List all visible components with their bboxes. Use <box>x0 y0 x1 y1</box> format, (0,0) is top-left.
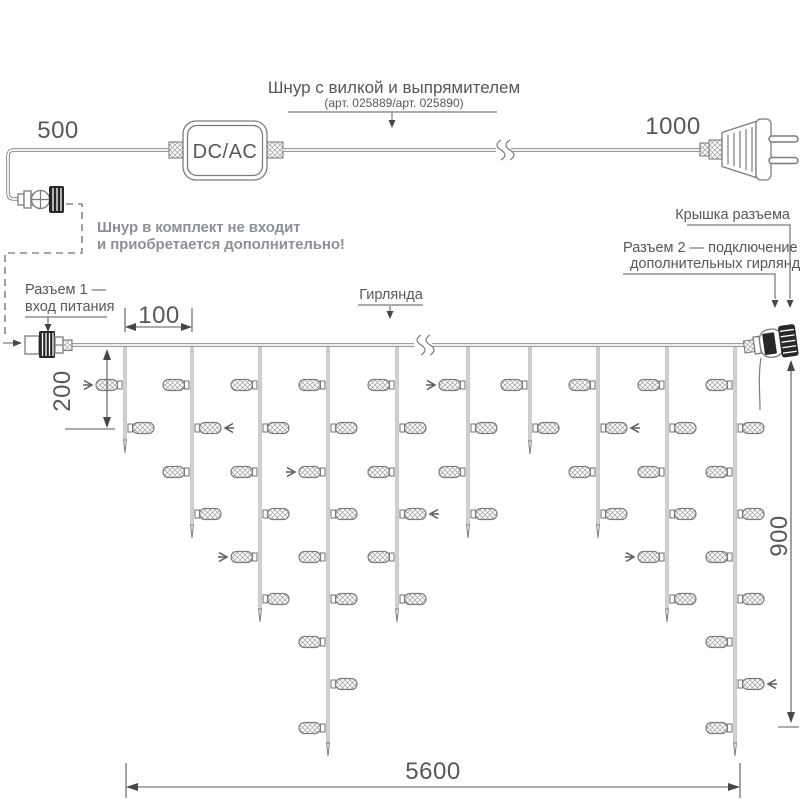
lamp-icon <box>368 467 390 478</box>
lamp-socket <box>321 638 326 646</box>
lamp-icon <box>706 380 728 391</box>
cap-tether <box>759 358 761 410</box>
lamp-icon <box>606 423 628 434</box>
garland-callout: Гирлянда <box>358 287 424 319</box>
lamp-socket <box>321 381 326 389</box>
lamp-icon <box>231 380 253 391</box>
drop-tip <box>666 609 669 622</box>
lamp-icon <box>200 509 222 520</box>
lamp-icon <box>675 423 697 434</box>
lamp-socket <box>253 553 258 561</box>
lamp-socket <box>390 553 395 561</box>
lamp-icon <box>743 679 765 690</box>
lamp-socket <box>728 468 733 476</box>
dim-500: 500 <box>37 117 79 144</box>
direction-arrow-icon <box>426 381 435 390</box>
lamp-socket <box>400 424 405 432</box>
lamp-socket <box>390 468 395 476</box>
garland-drops <box>83 347 777 756</box>
dashed-arrow-head <box>13 340 22 347</box>
plug-prongs <box>772 139 795 161</box>
lamp-socket <box>471 510 476 518</box>
lamp-icon <box>163 380 185 391</box>
lamp-socket <box>660 381 665 389</box>
connector1-label-line1: Разъем 1 — <box>25 282 107 298</box>
dim-200: 200 <box>49 370 76 412</box>
lamp-socket <box>321 553 326 561</box>
lamp-icon <box>638 552 660 563</box>
drop-tip <box>259 609 262 622</box>
lamp-socket <box>728 553 733 561</box>
lamp-icon <box>268 423 290 434</box>
lamp-icon <box>501 380 523 391</box>
lamp-icon <box>268 594 290 605</box>
lamp-socket <box>195 424 200 432</box>
drop-tip <box>529 441 532 454</box>
direction-arrow-icon <box>218 553 227 562</box>
lamp-icon <box>743 423 765 434</box>
drop-tip <box>327 743 330 756</box>
lamp-icon <box>299 723 321 734</box>
lamp-socket <box>185 381 190 389</box>
lamp-icon <box>569 380 591 391</box>
lamp-socket <box>670 510 675 518</box>
lamp-icon <box>675 594 697 605</box>
garland-diagram: 500 DC/AC 1000 Шнур с вилкой и выпрямите… <box>0 0 800 800</box>
connector1-callout: Разъем 1 — вход питания <box>25 282 114 332</box>
dcac-converter-box: DC/AC <box>169 121 283 180</box>
lamp-icon <box>439 467 461 478</box>
lamp-socket <box>738 510 743 518</box>
dim-100-group: 100 <box>125 302 192 332</box>
connector2-callout: Разъем 2 — подключение дополнительных ги… <box>623 240 800 308</box>
drop-tip <box>396 609 399 622</box>
direction-arrow-icon <box>286 468 295 477</box>
lamp-socket <box>195 510 200 518</box>
lamp-icon <box>231 467 253 478</box>
lamp-socket <box>331 595 336 603</box>
lamp-icon <box>231 552 253 563</box>
lamp-socket <box>591 381 596 389</box>
lamp-socket <box>738 424 743 432</box>
lamp-socket <box>461 468 466 476</box>
connector2-label-line2: дополнительных гирлянд <box>630 256 800 272</box>
lamp-icon <box>200 423 222 434</box>
drop-tip <box>734 743 737 756</box>
drop-tip <box>597 525 600 538</box>
dim-1000: 1000 <box>645 113 700 140</box>
lamp-icon <box>336 679 358 690</box>
lamp-icon <box>299 467 321 478</box>
lamp-icon <box>336 594 358 605</box>
lamp-socket <box>728 381 733 389</box>
lamp-socket <box>660 553 665 561</box>
lamp-icon <box>268 509 290 520</box>
lamp-socket <box>728 638 733 646</box>
cap-label: Крышка разъема <box>675 207 791 223</box>
drop-tip <box>467 525 470 538</box>
lamp-icon <box>706 552 728 563</box>
note-line1: Шнур в комплект не входит <box>97 219 300 236</box>
dim-900-group: 900 <box>766 360 799 727</box>
dim-900: 900 <box>766 515 793 557</box>
break-symbols <box>417 140 514 355</box>
lamp-socket <box>118 381 123 389</box>
lamp-icon <box>439 380 461 391</box>
lamp-socket <box>670 595 675 603</box>
lamp-icon <box>476 423 498 434</box>
lamp-icon <box>299 637 321 648</box>
direction-arrow-icon <box>631 424 640 433</box>
lamp-socket <box>601 510 606 518</box>
power-plug-icon <box>700 119 795 180</box>
lamp-socket <box>185 468 190 476</box>
cord-callout: Шнур с вилкой и выпрямителем (арт. 02588… <box>268 78 520 128</box>
connector-2 <box>742 324 799 363</box>
lamp-socket <box>400 595 405 603</box>
power-cord-connector <box>18 186 64 213</box>
lamp-icon <box>299 380 321 391</box>
lamp-socket <box>728 724 733 732</box>
lamp-icon <box>405 509 427 520</box>
cord-subtitle: (арт. 025889/арт. 025890) <box>324 96 463 110</box>
drop-tip <box>124 440 127 453</box>
lamp-icon <box>476 509 498 520</box>
power-cord-left-segment <box>8 150 170 199</box>
lamp-icon <box>743 509 765 520</box>
lamp-socket <box>128 424 133 432</box>
lamp-icon <box>606 509 628 520</box>
lamp-icon <box>638 380 660 391</box>
lamp-socket <box>331 680 336 688</box>
lamp-icon <box>163 467 185 478</box>
direction-arrow-icon <box>225 424 234 433</box>
direction-arrow-icon <box>83 381 92 390</box>
lamp-icon <box>336 509 358 520</box>
direction-arrow-icon <box>625 553 634 562</box>
lamp-icon <box>706 723 728 734</box>
lamp-socket <box>533 424 538 432</box>
lamp-icon <box>133 423 155 434</box>
connector2-label-line1: Разъем 2 — подключение <box>623 240 798 256</box>
lamp-socket <box>660 468 665 476</box>
garland-label: Гирлянда <box>359 287 423 303</box>
lamp-socket <box>321 468 326 476</box>
lamp-socket <box>471 424 476 432</box>
lamp-socket <box>523 381 528 389</box>
lamp-socket <box>331 510 336 518</box>
lamp-socket <box>253 468 258 476</box>
lamp-icon <box>743 594 765 605</box>
lamp-icon <box>299 552 321 563</box>
lamp-socket <box>253 381 258 389</box>
lamp-icon <box>638 467 660 478</box>
lamp-socket <box>738 680 743 688</box>
lamp-socket <box>670 424 675 432</box>
lamp-socket <box>601 424 606 432</box>
lamp-icon <box>405 594 427 605</box>
connector-1 <box>25 331 72 358</box>
lamp-socket <box>263 595 268 603</box>
lamp-icon <box>706 637 728 648</box>
lamp-socket <box>591 468 596 476</box>
cord-title: Шнур с вилкой и выпрямителем <box>268 78 520 97</box>
lamp-icon <box>405 423 427 434</box>
dim-100: 100 <box>138 302 180 329</box>
connector1-label-line2: вход питания <box>25 299 114 315</box>
lamp-icon <box>569 467 591 478</box>
lamp-socket <box>400 510 405 518</box>
lamp-socket <box>461 381 466 389</box>
note-line2: и приобретается дополнительно! <box>97 236 345 253</box>
dim-5600: 5600 <box>405 758 460 785</box>
dcac-label: DC/AC <box>193 141 258 163</box>
lamp-socket <box>321 724 326 732</box>
lamp-socket <box>390 381 395 389</box>
lamp-socket <box>263 510 268 518</box>
lamp-icon <box>336 423 358 434</box>
lamp-icon <box>368 380 390 391</box>
direction-arrow-icon <box>430 510 439 519</box>
lamp-socket <box>738 595 743 603</box>
lamp-icon <box>368 552 390 563</box>
dim-5600-group: 5600 <box>126 758 740 798</box>
lamp-icon <box>538 423 560 434</box>
lamp-icon <box>675 509 697 520</box>
lamp-socket <box>263 424 268 432</box>
lamp-socket <box>331 424 336 432</box>
drop-tip <box>191 525 194 538</box>
lamp-icon <box>706 467 728 478</box>
direction-arrow-icon <box>768 680 777 689</box>
